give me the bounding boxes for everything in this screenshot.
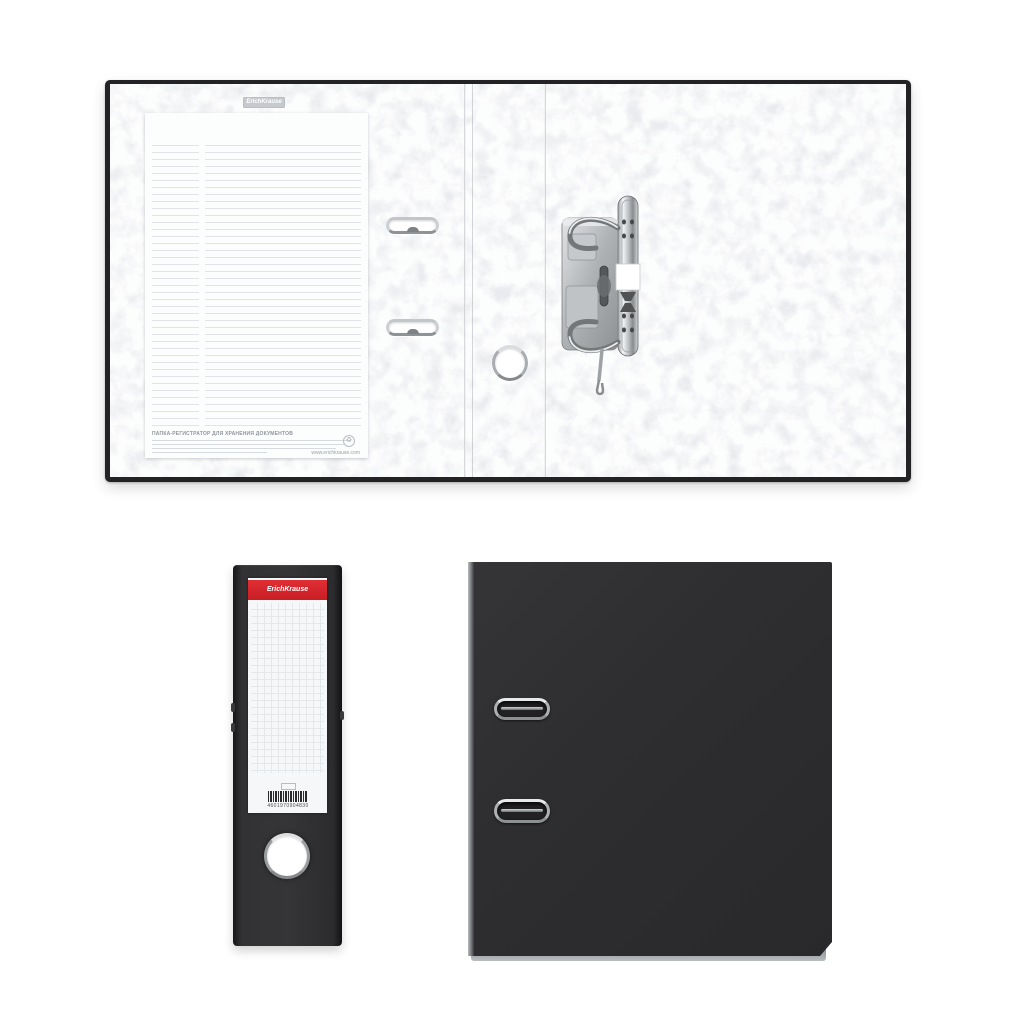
barcode-digits: 4601970904830 [258,803,318,809]
binder-front-cover [468,562,832,956]
mechanism-release-rod [597,350,603,394]
spine-label-grid [251,603,324,773]
spine-fold-seam-left-inner [472,84,473,477]
article-number-box [281,783,296,790]
lined-registry-sheet: ПАПКА-РЕГИСТРАТОР ДЛЯ ХРАНЕНИЯ ДОКУМЕНТО… [145,113,368,458]
fine-print-line [152,452,267,453]
spine-label: ErichKrause 4601970904830 [248,578,327,813]
barcode [268,791,308,802]
product-photo-stage: ErichKrause ПАПКА-РЕГИСТРАТОР ДЛЯ ХРАНЕН… [0,0,1024,1024]
spine-finger-hole [264,833,310,879]
eyelet-wire [501,707,543,710]
fine-print-line [152,444,344,445]
spine-finger-ring [492,345,528,381]
spine-rivet-nub [231,723,235,732]
binder-spine-view: ErichKrause 4601970904830 [233,565,342,946]
eyelet-wire-notch [407,227,419,232]
eyelet-wire-notch [407,329,419,334]
cover-rado-eyelet-bottom [494,799,550,823]
cover-spine-edge [468,562,474,956]
sheet-margin-rules [152,139,199,431]
sheet-heading: ПАПКА-РЕГИСТРАТОР ДЛЯ ХРАНЕНИЯ ДОКУМЕНТО… [152,431,319,437]
brand-emboss-stamp: ErichKrause [243,97,285,108]
open-binder-marble-lining: ErichKrause ПАПКА-РЕГИСТРАТОР ДЛЯ ХРАНЕН… [110,84,906,477]
sheet-fine-print: ПАПКА-РЕГИСТРАТОР ДЛЯ ХРАНЕНИЯ ДОКУМЕНТО… [152,431,361,455]
spine-fold-seam-right [544,84,546,477]
sheet-main-rules [205,139,361,431]
recycle-icon: ♻ [343,435,355,447]
eyelet-wire [501,809,543,812]
website-text: www.erichkrause.com [311,450,360,456]
spine-brand-strip: ErichKrause [248,580,327,600]
fine-print-line [152,448,336,449]
spine-rivet-nub [340,711,344,720]
cover-rado-eyelet-top [494,698,550,720]
fine-print-line [152,440,351,441]
spine-fold-seam-left [464,84,466,477]
rado-eyelet-top [386,217,439,234]
rado-eyelet-bottom [386,319,439,336]
spine-rivet-nub [231,703,235,712]
lever-arch-mechanism [556,190,648,396]
open-binder: ErichKrause ПАПКА-РЕГИСТРАТОР ДЛЯ ХРАНЕН… [105,80,911,482]
